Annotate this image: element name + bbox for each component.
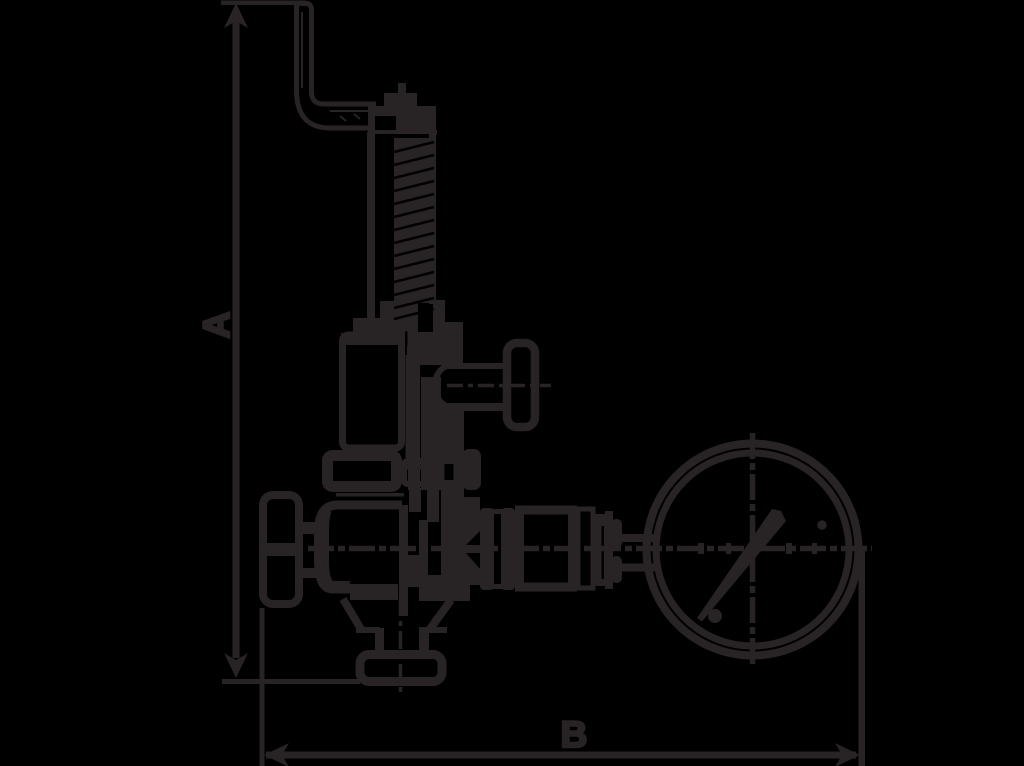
svg-text:A: A: [196, 312, 237, 339]
svg-text:B: B: [561, 714, 588, 755]
